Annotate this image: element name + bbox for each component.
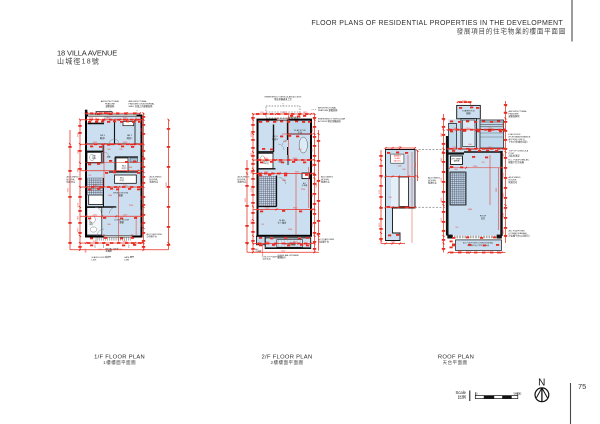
svg-text:1,828: 1,828 [91, 260, 97, 262]
svg-text:1500: 1500 [398, 165, 402, 167]
svg-text:FLOOR PLANS OF RESIDENTIAL PRO: FLOOR PLANS OF RESIDENTIAL PROPERTIES IN… [311, 20, 563, 27]
svg-text:2250: 2250 [129, 205, 133, 207]
svg-text:ADJOINING: ADJOINING [321, 176, 333, 179]
svg-text:900: 900 [402, 169, 405, 171]
svg-text:1500: 1500 [108, 195, 112, 197]
svg-text:75: 75 [578, 382, 586, 391]
svg-text:750: 750 [388, 197, 391, 199]
svg-text:N: N [538, 378, 545, 389]
svg-text:18 VILLA AVENUE: 18 VILLA AVENUE [57, 48, 117, 57]
svg-text:1500: 1500 [288, 229, 292, 231]
svg-text:750: 750 [119, 149, 122, 151]
svg-text:ADJOINING: ADJOINING [509, 176, 521, 179]
svg-text:山城徑18號: 山城徑18號 [57, 56, 100, 65]
svg-text:ADJOINING: ADJOINING [238, 176, 250, 179]
svg-text:ADJOINING: ADJOINING [428, 177, 440, 180]
svg-text:900: 900 [283, 141, 286, 143]
svg-text:天台平面圖: 天台平面圖 [443, 359, 468, 366]
svg-text:900: 900 [107, 149, 110, 151]
svg-text:EMERGENCY VEHICULAR ACCESS: EMERGENCY VEHICULAR ACCESS [265, 96, 302, 99]
svg-text:發展項目的住宅物業的樓面平面圖: 發展項目的住宅物業的樓面平面圖 [457, 27, 566, 36]
svg-text:ADJOINING: ADJOINING [150, 176, 162, 179]
svg-text:BALUST.: BALUST. [394, 159, 402, 162]
svg-text:STAIRHOOD: STAIRHOOD [462, 110, 475, 113]
svg-text:600: 600 [468, 144, 471, 146]
svg-text:5M(米): 5M(米) [514, 392, 522, 396]
svg-text:900: 900 [107, 224, 110, 226]
svg-text:900: 900 [454, 169, 457, 171]
svg-text:ADJOINING: ADJOINING [67, 176, 79, 179]
svg-text:1,883: 1,883 [124, 260, 130, 262]
svg-text:A/C PLATFORM: A/C PLATFORM [318, 238, 334, 241]
svg-text:1樓樓面平面圖: 1樓樓面平面圖 [103, 359, 136, 366]
svg-text:12425: 12425 [316, 181, 318, 187]
svg-text:750: 750 [298, 149, 301, 151]
svg-text:2250: 2250 [301, 189, 305, 191]
svg-text:比例: 比例 [458, 394, 466, 401]
svg-text:2000: 2000 [468, 209, 472, 211]
svg-text:2樓樓面平面圖: 2樓樓面平面圖 [271, 359, 304, 366]
svg-text:750: 750 [481, 162, 484, 164]
svg-text:2000: 2000 [128, 167, 132, 169]
svg-text:2000: 2000 [282, 180, 286, 182]
